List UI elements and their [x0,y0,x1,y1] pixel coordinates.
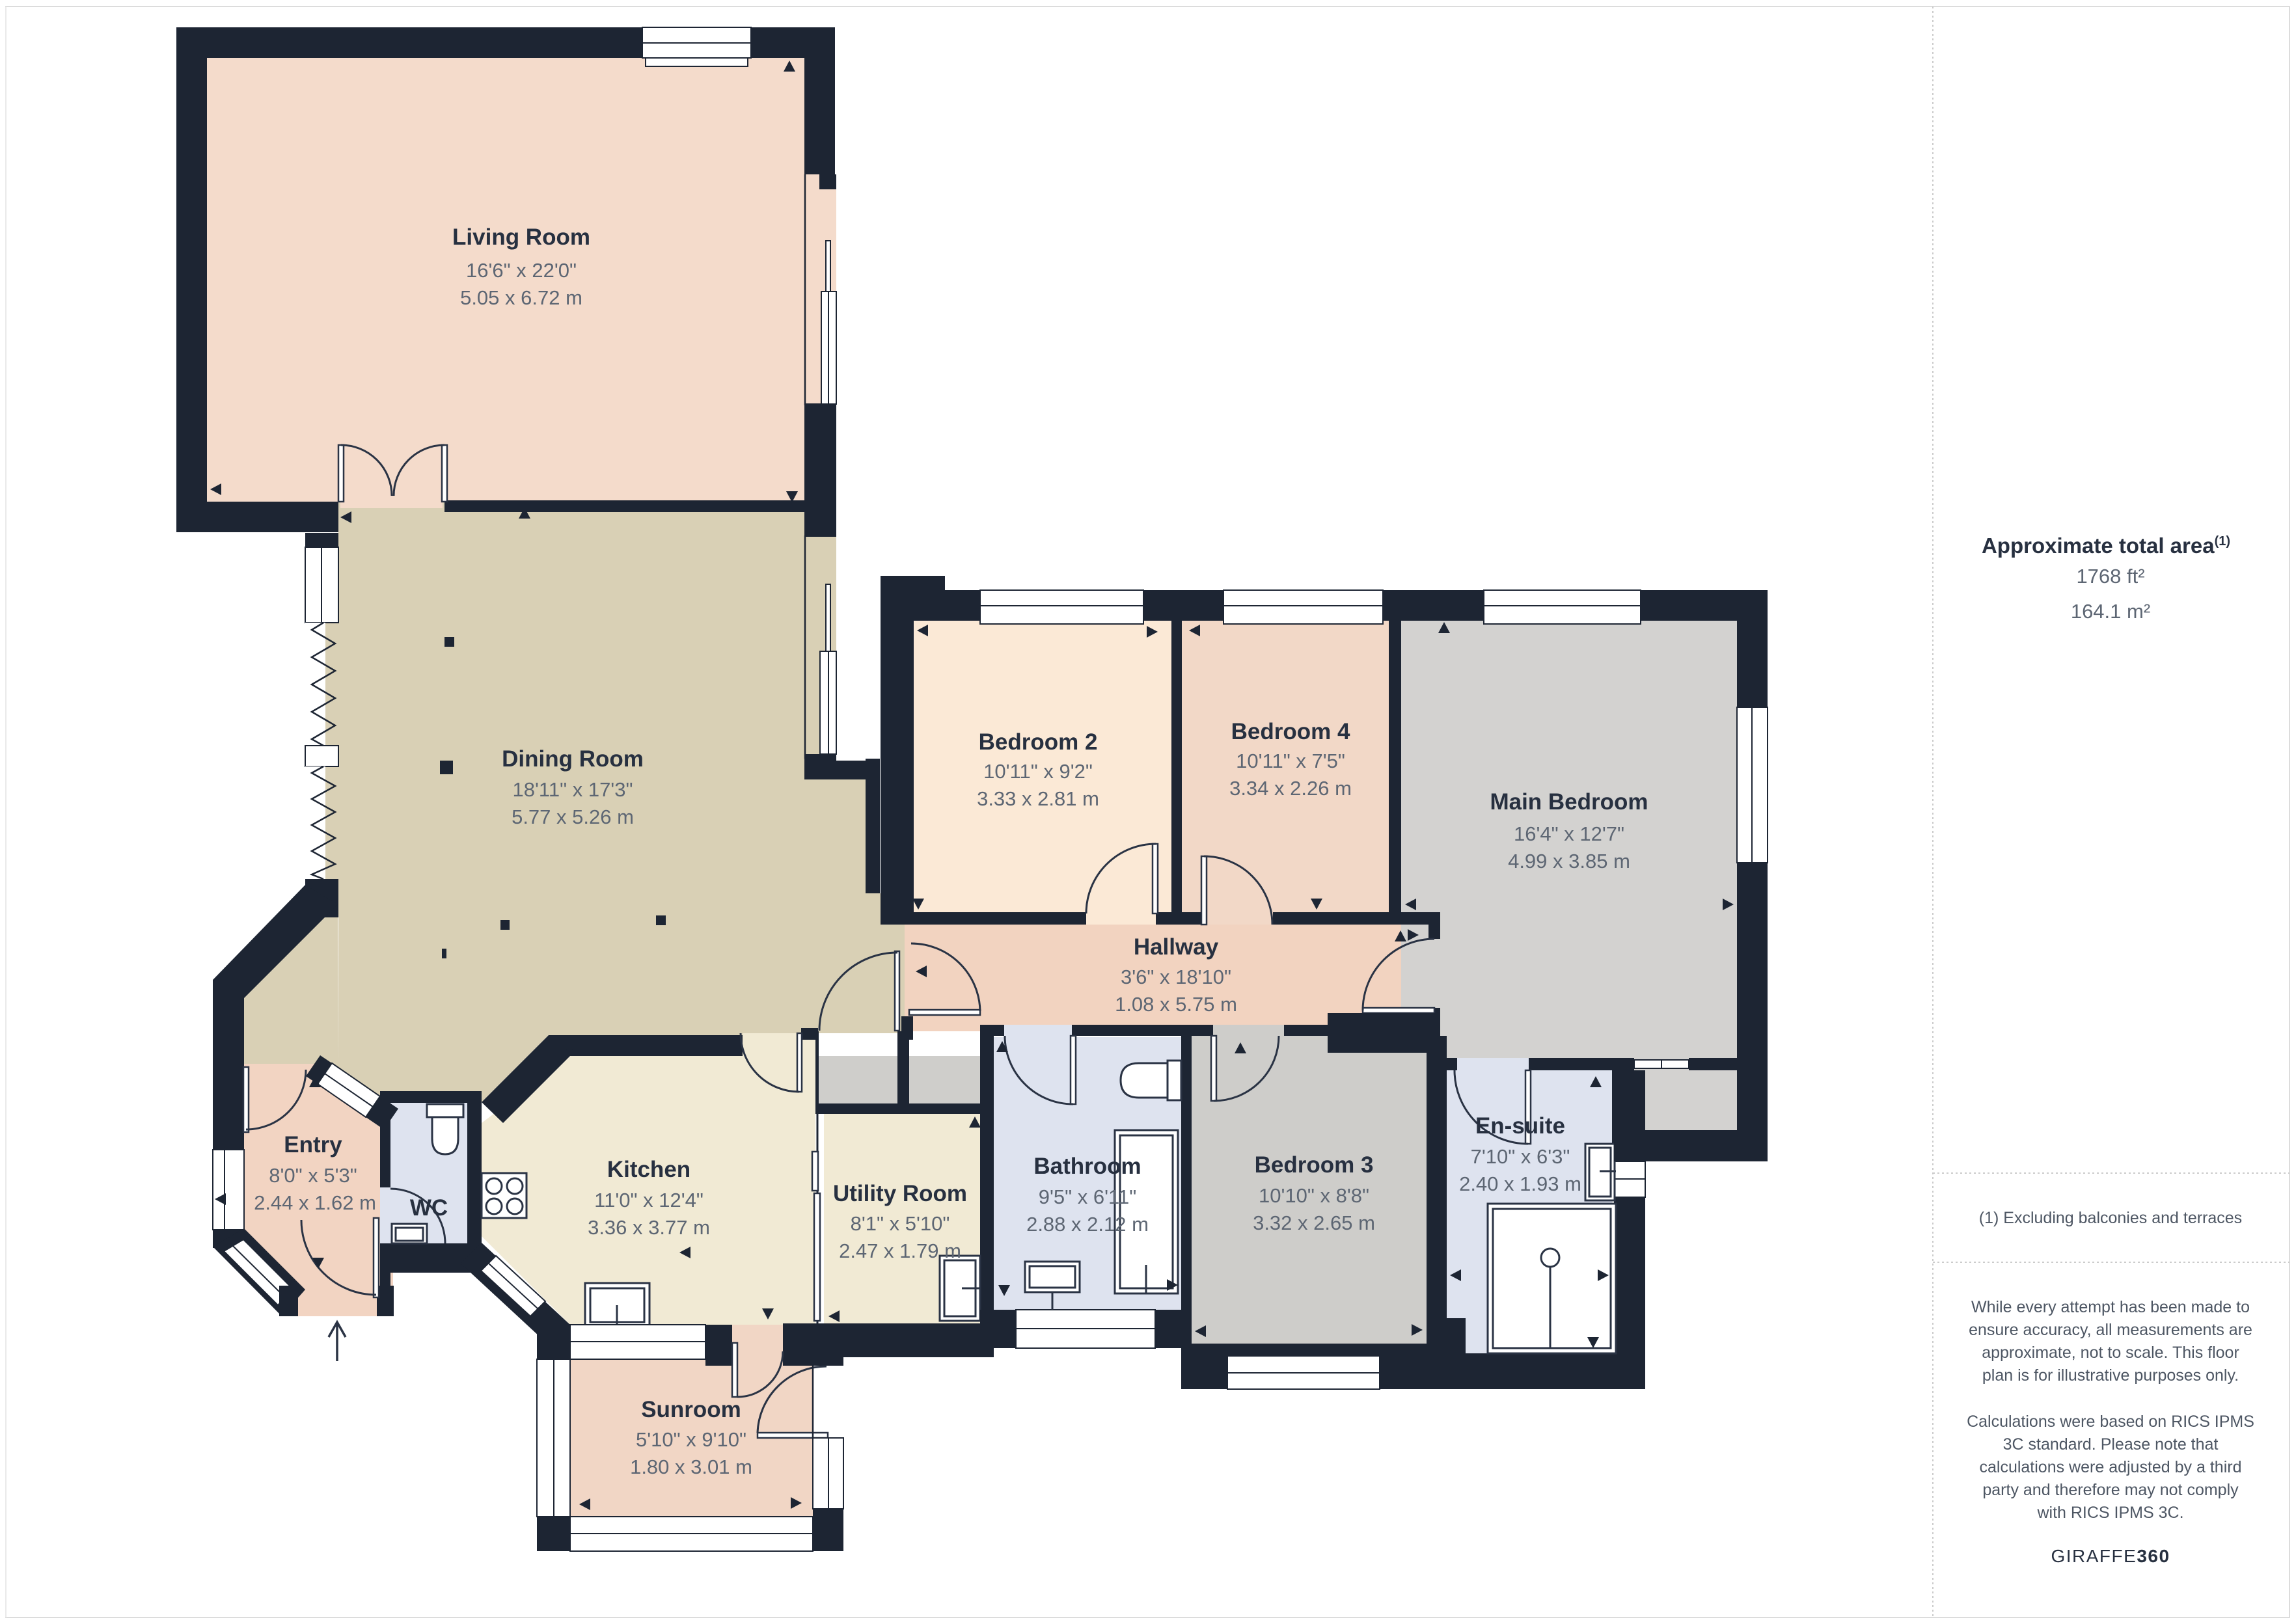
svg-text:Bathroom: Bathroom [1033,1154,1141,1179]
svg-text:8'1" x 5'10": 8'1" x 5'10" [851,1212,950,1235]
svg-text:10'11" x 9'2": 10'11" x 9'2" [983,760,1093,783]
svg-text:5.05 x 6.72 m: 5.05 x 6.72 m [460,286,582,309]
svg-text:3C standard. Please note that: 3C standard. Please note that [2003,1435,2219,1454]
svg-text:2.88 x 2.12 m: 2.88 x 2.12 m [1026,1213,1149,1236]
svg-text:16'6" x 22'0": 16'6" x 22'0" [466,259,577,282]
svg-text:164.1 m²: 164.1 m² [2071,600,2150,623]
svg-text:9'5" x 6'11": 9'5" x 6'11" [1039,1185,1136,1208]
svg-text:Living Room: Living Room [452,224,590,250]
svg-text:1768 ft²: 1768 ft² [2076,565,2144,588]
svg-text:Bedroom 2: Bedroom 2 [979,729,1098,755]
svg-text:GIRAFFE360: GIRAFFE360 [2051,1546,2170,1566]
svg-text:3.33 x 2.81 m: 3.33 x 2.81 m [977,787,1099,810]
svg-text:3'6" x 18'10": 3'6" x 18'10" [1121,966,1231,988]
svg-text:Approximate total area(1): Approximate total area(1) [1982,534,2230,558]
svg-text:Dining Room: Dining Room [502,746,644,772]
svg-text:calculations were adjusted by: calculations were adjusted by a third [1979,1458,2241,1476]
svg-text:2.47 x 1.79 m: 2.47 x 1.79 m [839,1239,961,1262]
svg-text:3.36 x 3.77 m: 3.36 x 3.77 m [588,1216,710,1239]
svg-text:5'10" x 9'10": 5'10" x 9'10" [636,1428,746,1451]
svg-text:4.99 x 3.85 m: 4.99 x 3.85 m [1508,850,1630,873]
svg-text:Main Bedroom: Main Bedroom [1490,789,1648,815]
svg-text:Bedroom 3: Bedroom 3 [1255,1152,1374,1178]
svg-text:1.08 x 5.75 m: 1.08 x 5.75 m [1115,993,1237,1016]
svg-text:(1) Excluding balconies and te: (1) Excluding balconies and terraces [1979,1209,2242,1227]
svg-text:Entry: Entry [284,1132,342,1157]
svg-text:While every attempt has been m: While every attempt has been made to [1971,1298,2250,1316]
svg-text:Hallway: Hallway [1134,934,1219,960]
svg-text:5.77 x 5.26 m: 5.77 x 5.26 m [512,805,634,828]
svg-text:Calculations were based on RIC: Calculations were based on RICS IPMS [1967,1413,2254,1431]
svg-text:7'10" x 6'3": 7'10" x 6'3" [1471,1145,1570,1168]
svg-text:11'0" x 12'4": 11'0" x 12'4" [594,1189,704,1211]
svg-text:Bedroom 4: Bedroom 4 [1231,719,1350,744]
svg-text:Sunroom: Sunroom [641,1397,741,1422]
svg-text:16'4" x 12'7": 16'4" x 12'7" [1514,822,1624,845]
svg-text:party and therefore may not co: party and therefore may not comply [1982,1481,2239,1499]
svg-text:8'0" x 5'3": 8'0" x 5'3" [269,1164,357,1187]
svg-text:3.32 x 2.65 m: 3.32 x 2.65 m [1253,1211,1375,1234]
svg-text:1.80 x 3.01 m: 1.80 x 3.01 m [630,1455,752,1478]
svg-text:Kitchen: Kitchen [607,1157,690,1182]
svg-text:with RICS IPMS 3C.: with RICS IPMS 3C. [2036,1504,2183,1522]
svg-text:18'11" x 17'3": 18'11" x 17'3" [513,778,633,801]
svg-text:approximate, not to scale. Thi: approximate, not to scale. This floor [1982,1344,2239,1362]
svg-text:3.34 x 2.26 m: 3.34 x 2.26 m [1229,777,1352,800]
svg-text:ensure accuracy, all measureme: ensure accuracy, all measurements are [1969,1321,2252,1339]
svg-text:WC: WC [410,1195,448,1221]
svg-text:10'11" x 7'5": 10'11" x 7'5" [1236,750,1345,772]
svg-text:Utility Room: Utility Room [833,1181,967,1206]
svg-text:2.40 x 1.93 m: 2.40 x 1.93 m [1459,1172,1581,1195]
svg-text:10'10" x 8'8": 10'10" x 8'8" [1259,1184,1369,1207]
svg-text:2.44 x 1.62 m: 2.44 x 1.62 m [254,1191,376,1214]
svg-text:En-suite: En-suite [1475,1113,1565,1139]
svg-text:plan is for illustrative purpo: plan is for illustrative purposes only. [1982,1366,2239,1385]
